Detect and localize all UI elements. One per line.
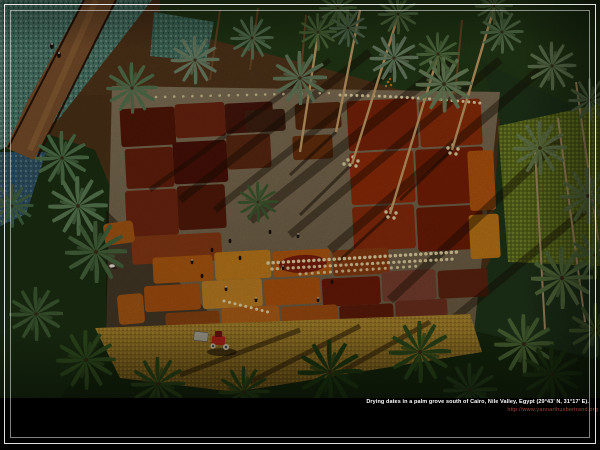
photo-caption: Drying dates in a palm grove south of Ca…: [366, 399, 589, 405]
photo-scene: [0, 0, 600, 418]
screenshot-stage: Drying dates in a palm grove south of Ca…: [0, 0, 600, 450]
caption-band: [0, 398, 600, 450]
photo-credit-url: http://www.yannarthusbertrand.org: [507, 407, 598, 413]
aerial-photo: [0, 0, 600, 450]
